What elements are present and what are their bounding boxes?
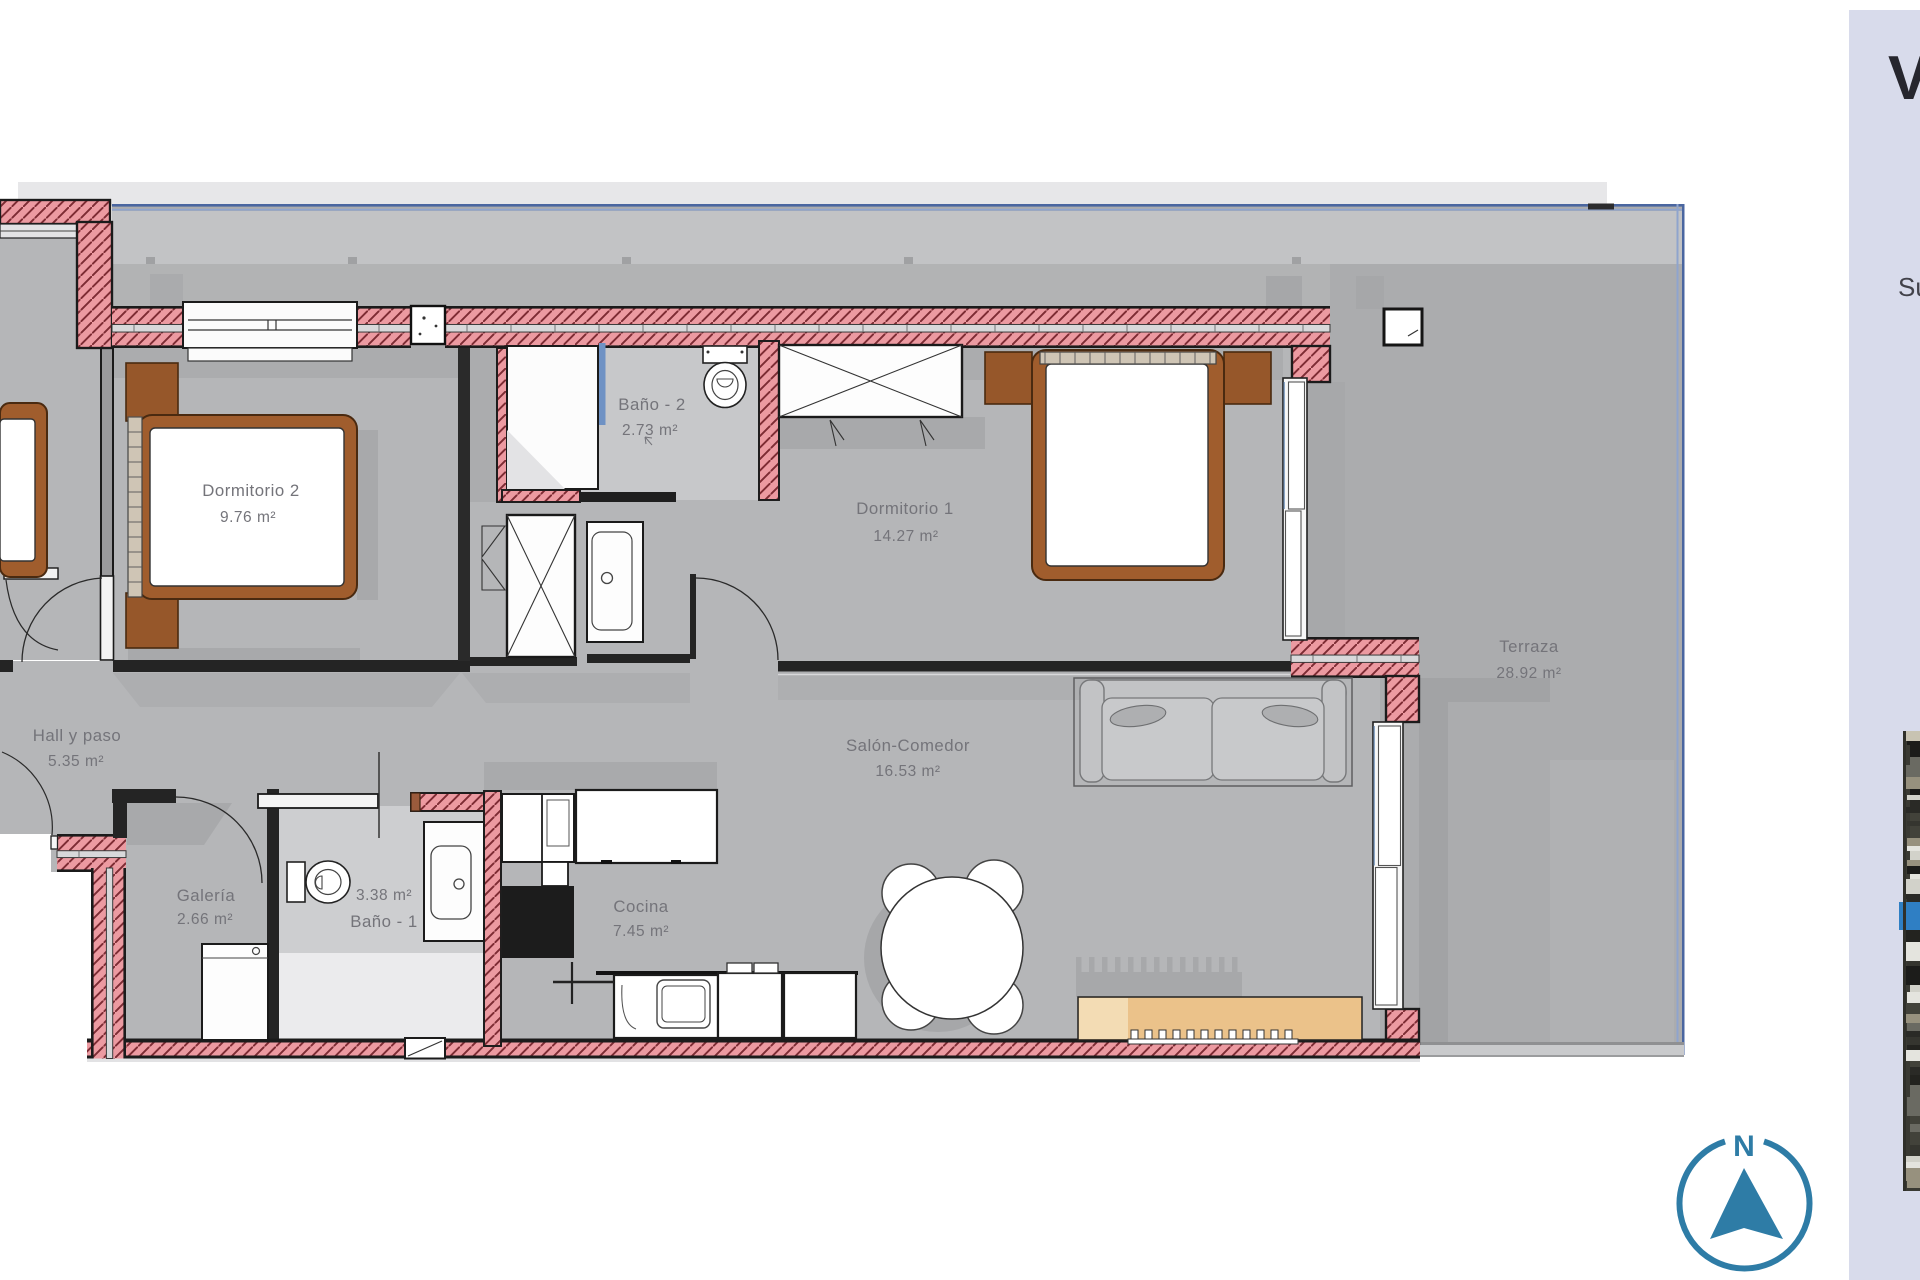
svg-text:7.45 m²: 7.45 m²: [613, 923, 669, 940]
svg-text:Dormitorio 1: Dormitorio 1: [856, 499, 953, 518]
svg-text:2.66 m²: 2.66 m²: [177, 911, 233, 928]
svg-text:Terraza: Terraza: [1499, 637, 1559, 656]
svg-text:Baño - 1: Baño - 1: [350, 912, 417, 931]
svg-text:Galería: Galería: [177, 886, 236, 905]
svg-text:Hall y paso: Hall y paso: [33, 726, 122, 745]
svg-text:9.76 m²: 9.76 m²: [220, 509, 276, 526]
svg-text:28.92 m²: 28.92 m²: [1496, 665, 1561, 682]
svg-text:V: V: [1888, 44, 1920, 113]
svg-text:Salón-Comedor: Salón-Comedor: [846, 736, 970, 755]
svg-text:14.27 m²: 14.27 m²: [873, 528, 938, 545]
svg-text:N: N: [1733, 1130, 1755, 1163]
svg-text:3.38 m²: 3.38 m²: [356, 887, 412, 904]
svg-text:5.35 m²: 5.35 m²: [48, 753, 104, 770]
svg-text:Baño - 2: Baño - 2: [618, 395, 685, 414]
svg-text:Dormitorio 2: Dormitorio 2: [202, 481, 299, 500]
svg-text:Su: Su: [1898, 272, 1920, 302]
svg-text:16.53 m²: 16.53 m²: [875, 763, 940, 780]
svg-text:Cocina: Cocina: [613, 897, 668, 916]
svg-text:2.73 m²: 2.73 m²: [622, 422, 678, 439]
